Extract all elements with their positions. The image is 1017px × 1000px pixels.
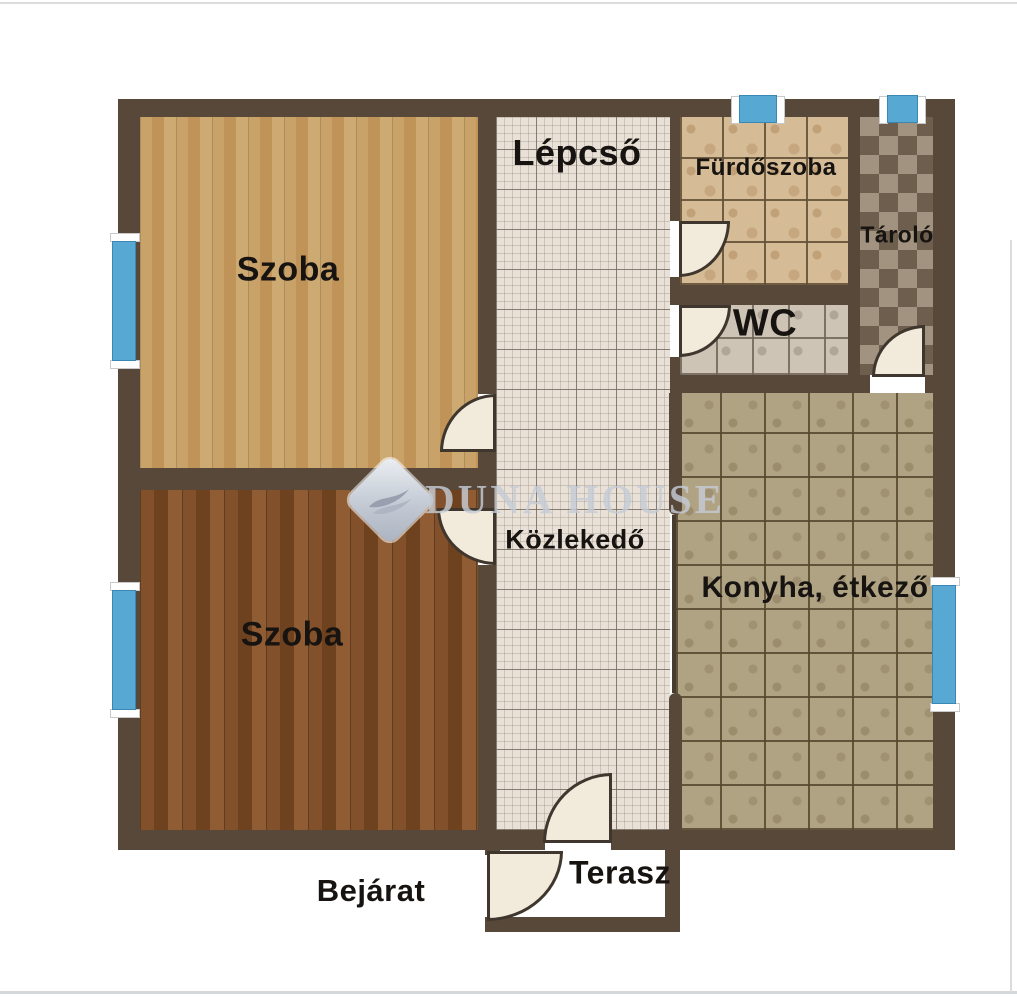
- room-szoba-bottom: [140, 490, 478, 830]
- window-trim: [930, 703, 960, 712]
- kitchen-opening-threshold: [672, 515, 676, 693]
- window-bathroom: [739, 95, 777, 123]
- window-room-top: [112, 241, 136, 361]
- wall-hall-right-a: [670, 117, 680, 221]
- wall-outer-bottom-left: [118, 830, 545, 850]
- window-trim: [110, 360, 140, 369]
- wall-terrace-bottom: [485, 917, 680, 932]
- window-trim: [110, 709, 140, 718]
- window-trim: [776, 96, 785, 124]
- frame-line-bottom: [0, 991, 1017, 994]
- room-label-konyha: Konyha, étkező: [701, 571, 928, 605]
- wall-kitchen-top-b: [925, 375, 955, 393]
- window-kitchen: [932, 585, 956, 704]
- window-storage: [887, 95, 918, 123]
- room-label-furdoszoba: Fürdőszoba: [696, 154, 837, 182]
- wall-outer-bottom-right: [611, 830, 955, 850]
- room-label-kozlekedo: Közlekedő: [505, 525, 645, 556]
- floorplan: Duna House Szoba Szoba Lépcső Közlekedő …: [0, 0, 1017, 1000]
- wall-between-rooms: [118, 468, 496, 490]
- room-label-szoba-top: Szoba: [237, 251, 340, 290]
- wall-kitchen-top-a: [670, 375, 870, 393]
- wall-bathroom-storage: [848, 117, 860, 375]
- room-label-bejarat: Bejárat: [317, 873, 426, 909]
- room-label-szoba-bottom: Szoba: [241, 616, 344, 655]
- wall-hall-left-b: [478, 452, 496, 468]
- room-label-lepcso: Lépcső: [512, 132, 641, 174]
- window-trim: [917, 96, 926, 124]
- room-label-tarolo: Tároló: [860, 222, 933, 249]
- wall-outer-top: [118, 99, 955, 117]
- room-szoba-top: [140, 117, 478, 468]
- room-kitchen: [676, 393, 933, 830]
- room-label-wc: WC: [733, 303, 797, 346]
- window-room-bottom: [112, 590, 136, 710]
- wall-kitchen-left-bottom: [669, 693, 682, 830]
- frame-line-top: [0, 2, 1017, 4]
- wall-hall-left-d: [478, 565, 496, 830]
- wall-hall-left-a: [478, 117, 496, 394]
- room-hallway-staircase: [496, 117, 670, 830]
- room-label-terasz: Terasz: [569, 855, 671, 892]
- wall-outer-right: [933, 99, 955, 850]
- wall-kitchen-left-top: [669, 393, 682, 515]
- wall-hall-left-c: [478, 490, 496, 508]
- frame-line-right: [1010, 240, 1012, 992]
